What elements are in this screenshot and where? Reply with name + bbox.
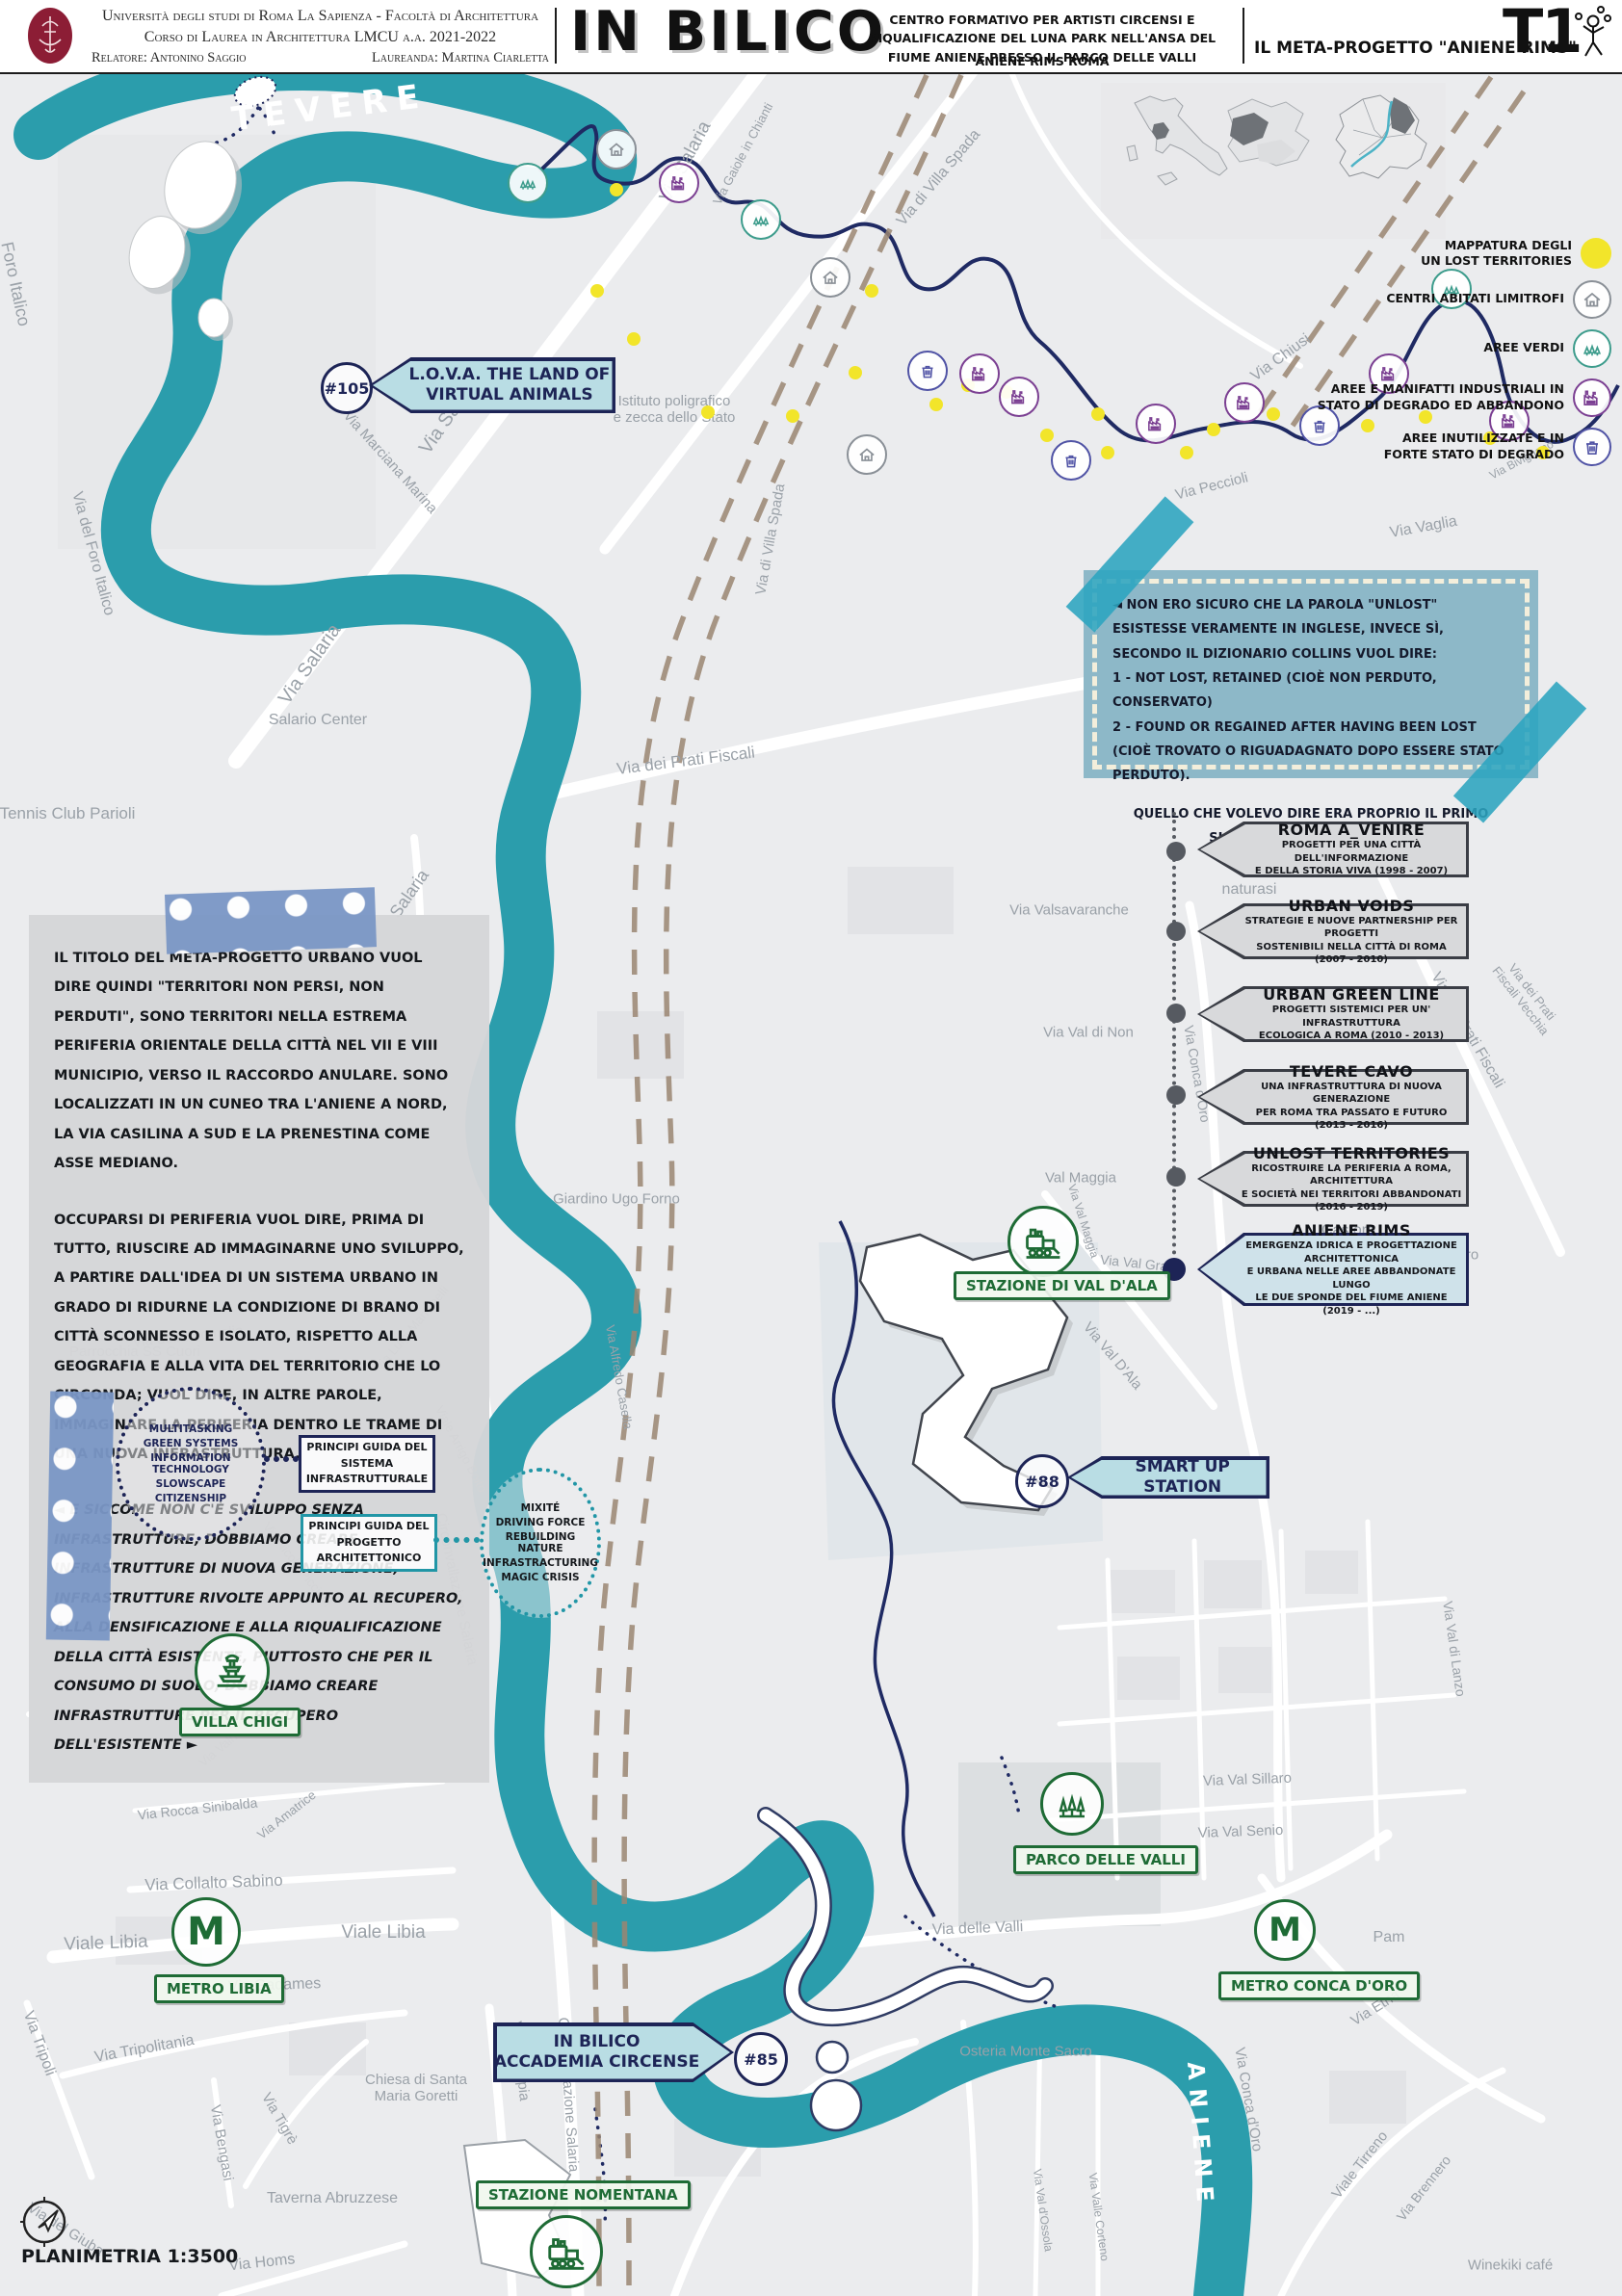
street-label: Via delle Valli — [931, 1918, 1023, 1940]
timeline-node — [1166, 1004, 1186, 1023]
street-label: Taverna Abruzzese — [267, 2190, 398, 2207]
metro-conca-doro-label: METRO CONCA D'ORO — [1218, 1971, 1420, 2000]
quote-line2: 1 - NOT LOST, RETAINED (CIOÈ NON PERDUTO… — [1112, 666, 1509, 716]
timeline-desc: RICOSTRUIRE LA PERIFERIA A ROMA, ARCHITE… — [1240, 1162, 1463, 1214]
timeline-dotted-line — [1172, 812, 1176, 1270]
timeline-node — [1166, 922, 1186, 941]
polka-tape — [46, 1391, 114, 1640]
legend-item-industriali: AREE E MANIFATTI INDUSTRIALI IN STATO DI… — [1305, 378, 1611, 417]
house-icon — [847, 434, 887, 475]
park-trees-icon — [1040, 1772, 1104, 1836]
trash-icon — [1051, 440, 1091, 481]
house-icon — [1573, 280, 1611, 319]
timeline-title: URBAN GREEN LINE — [1240, 985, 1463, 1004]
timeline-node — [1166, 1167, 1186, 1187]
poster-page: TEVERE ANIENE Foro ItalicoVia del Foro I… — [0, 0, 1622, 2296]
street-label: Osteria Monte Sacro — [959, 2043, 1092, 2059]
header-divider-1 — [555, 8, 557, 64]
poster-title: IN BILICO — [570, 0, 886, 64]
metro-icon: M — [171, 1897, 241, 1967]
trash-icon — [907, 351, 948, 391]
yellow-dot-icon — [1581, 238, 1611, 269]
timeline-item-urban-voids: URBAN VOIDS STRATEGIE E NUOVE PARTNERSHI… — [1197, 903, 1469, 959]
principle: MAGIC CRISIS — [501, 1572, 579, 1583]
street-label: Chiesa di Santa Maria Goretti — [365, 2072, 467, 2105]
unlost-territory-dot — [929, 398, 943, 411]
trash-icon — [1573, 428, 1611, 466]
timeline-node — [1166, 842, 1186, 861]
timeline-desc: PROGETTI SISTEMICI PER UN' INFRASTRUTTUR… — [1240, 1004, 1463, 1043]
sapienza-crest-icon — [25, 5, 75, 66]
train-station-icon — [530, 2215, 603, 2288]
quote-line3: 2 - FOUND OR REGAINED AFTER HAVING BEEN … — [1112, 716, 1509, 789]
house-icon — [810, 257, 850, 298]
timeline-title: UNLOST TERRITORIES — [1240, 1144, 1463, 1162]
legend-label: MAPPATURA DEGLI UN LOST TERRITORIES — [1421, 238, 1572, 270]
smart-up-station-label: SMART UP STATION — [1067, 1456, 1269, 1499]
metro-icon: M — [1254, 1899, 1316, 1961]
timeline-item-roma-avenire: ROMA A_VENIRE PROGETTI PER UNA CITTÀ DEL… — [1197, 822, 1469, 877]
legend-label: AREE INUTILIZZATE E IN FORTE STATO DI DE… — [1384, 430, 1564, 462]
principle: CITIZENSHIP — [155, 1493, 226, 1504]
timeline-title: ANIENE RIMS — [1240, 1221, 1463, 1239]
legend-label: CENTRI ABITATI LIMITROFI — [1386, 291, 1564, 306]
unlost-territory-dot — [1207, 423, 1220, 436]
street-label: Viale Libia — [341, 1922, 425, 1944]
unlost-territory-dot — [1267, 407, 1280, 421]
marker-number-85: #85 — [734, 2032, 788, 2086]
factory-icon — [1136, 404, 1176, 444]
street-label: Via Val Sillaro — [1203, 1770, 1293, 1789]
trees-icon — [1573, 329, 1611, 368]
university-line2: Corso di Laurea in Architettura LMCU a.a… — [92, 29, 549, 46]
laureanda-label: Laureanda: Martina Ciarletta — [372, 50, 549, 66]
stazione-nomentana-label: STAZIONE NOMENTANA — [476, 2180, 691, 2209]
map-legend: MAPPATURA DEGLI UN LOST TERRITORIES CENT… — [1305, 238, 1611, 477]
accademia-circense-label: IN BILICO ACCADEMIA CIRCENSE — [493, 2022, 734, 2082]
timeline-desc: STRATEGIE E NUOVE PARTNERSHIP PER PROGET… — [1240, 915, 1463, 967]
unlost-territory-dot — [1091, 407, 1105, 421]
street-label: Salario Center — [269, 712, 367, 729]
timeline-desc: PROGETTI PER UNA CITTÀ DELL'INFORMAZIONE… — [1240, 839, 1463, 878]
principle: SLOWSCAPE — [156, 1478, 226, 1490]
unlost-territory-dot — [1180, 446, 1193, 459]
relatore-label: Relatore: Antonino Saggio — [92, 50, 247, 66]
timeline-title: ROMA A_VENIRE — [1240, 821, 1463, 839]
house-icon — [596, 129, 637, 170]
juggler-icon — [1566, 6, 1618, 67]
header-divider-2 — [1243, 8, 1244, 64]
legend-item-verdi: AREE VERDI — [1305, 329, 1611, 368]
timeline-title: URBAN VOIDS — [1240, 897, 1463, 915]
unlost-territory-dot — [610, 183, 623, 196]
intro-paragraph-2: OCCUPARSI DI PERIFERIA VUOL DIRE, PRIMA … — [54, 1206, 464, 1470]
principle: DRIVING FORCE — [496, 1517, 586, 1528]
unlost-territory-dot — [1040, 429, 1054, 442]
unlost-quote-box: ◄ NON ERO SICURO CHE LA PAROLA "UNLOST" … — [1084, 570, 1538, 778]
timeline-title: TEVERE CAVO — [1240, 1062, 1463, 1081]
infrastructure-principles-circle: MULTITASKING GREEN SYSTEMS INFORMATION T… — [116, 1387, 266, 1541]
stazione-val-dala-label: STAZIONE DI VAL D'ALA — [954, 1271, 1170, 1300]
university-line1: Università degli studi di Roma La Sapien… — [92, 8, 549, 25]
fountain-icon — [195, 1633, 270, 1709]
dotted-connector — [264, 1456, 299, 1462]
street-label: Via Valsavaranche — [1009, 901, 1129, 918]
metro-letter: M — [1269, 1911, 1301, 1949]
factory-icon — [659, 163, 699, 203]
compass-icon — [19, 2196, 73, 2250]
unlost-territory-dot — [865, 284, 878, 298]
marker-label-text: L.O.V.A. THE LAND OF VIRTUAL ANIMALS — [369, 357, 615, 413]
marker-label-text: IN BILICO ACCADEMIA CIRCENSE — [493, 2022, 734, 2082]
unlost-territory-dot — [786, 409, 799, 423]
principle: INFRASTRACTURING — [483, 1557, 598, 1569]
header-bar: Università degli studi di Roma La Sapien… — [0, 0, 1622, 74]
train-station-icon — [1007, 1206, 1079, 1277]
unlost-territory-dot — [701, 405, 715, 419]
timeline-item-urban-green-line: URBAN GREEN LINE PROGETTI SISTEMICI PER … — [1197, 986, 1469, 1042]
marker-number-88: #88 — [1015, 1454, 1069, 1508]
unlost-territory-dot — [627, 332, 641, 346]
dotted-connector — [433, 1537, 480, 1543]
principle: MIXITÉ — [521, 1502, 561, 1514]
marker-number-105: #105 — [321, 362, 373, 414]
legend-item-inutilizzate: AREE INUTILIZZATE E IN FORTE STATO DI DE… — [1305, 428, 1611, 466]
legend-item-unlost: MAPPATURA DEGLI UN LOST TERRITORIES — [1305, 238, 1611, 270]
minimap-lazio — [1228, 99, 1309, 166]
poster-subt-line2: ANIENE RIMS ROMA — [846, 54, 1239, 68]
street-label: Viale Libia — [64, 1932, 148, 1956]
street-label: Tennis Club Parioli — [0, 804, 135, 823]
timeline-item-unlost-territories: UNLOST TERRITORIES RICOSTRUIRE LA PERIFE… — [1197, 1151, 1469, 1207]
street-label: Pam — [1373, 1929, 1405, 1946]
timeline-node — [1166, 1085, 1186, 1105]
principle: INFORMATION TECHNOLOGY — [119, 1452, 262, 1475]
architecture-principles-circle: MIXITÉ DRIVING FORCE REBUILDING NATURE I… — [480, 1468, 601, 1618]
quote-line1: ◄ NON ERO SICURO CHE LA PAROLA "UNLOST" … — [1112, 593, 1509, 666]
factory-icon — [999, 377, 1039, 417]
metro-letter: M — [187, 1910, 225, 1954]
street-label: Via Val di Non — [1043, 1024, 1134, 1040]
principle: MULTITASKING — [149, 1423, 232, 1435]
intro-paragraph-1: IL TITOLO DEL META-PROGETTO URBANO VUOL … — [54, 944, 464, 1179]
street-label: Istituto poligrafico e zecca dello Stato — [614, 393, 736, 427]
factory-icon — [1573, 378, 1611, 417]
street-label: Val Maggia — [1045, 1169, 1116, 1186]
trees-icon — [508, 163, 548, 203]
trees-icon — [741, 199, 781, 240]
legend-label: AREE VERDI — [1483, 340, 1564, 355]
principi-sistema-box: PRINCIPI GUIDA DEL SISTEMA INFRASTRUTTUR… — [299, 1435, 435, 1493]
villa-chigi-label: VILLA CHIGI — [179, 1708, 301, 1736]
lova-marker-label: L.O.V.A. THE LAND OF VIRTUAL ANIMALS — [369, 357, 615, 413]
legend-item-centri: CENTRI ABITATI LIMITROFI — [1305, 280, 1611, 319]
legend-label: AREE E MANIFATTI INDUSTRIALI IN STATO DI… — [1318, 381, 1564, 413]
principle: REBUILDING NATURE — [484, 1531, 597, 1554]
timeline-desc: EMERGENZA IDRICA E PROGETTAZIONE ARCHITE… — [1240, 1239, 1463, 1318]
unlost-territory-dot — [1101, 446, 1114, 459]
timeline-item-aniene-rims: ANIENE RIMS EMERGENZA IDRICA E PROGETTAZ… — [1197, 1233, 1469, 1306]
principle: GREEN SYSTEMS — [144, 1438, 239, 1449]
unlost-territory-dot — [590, 284, 604, 298]
planimetria-scale-note: PLANIMETRIA 1:3500 — [21, 2246, 238, 2267]
street-label: Giardino Ugo Forno — [553, 1190, 680, 1207]
street-label: Via Val Senio — [1197, 1822, 1283, 1841]
street-label: Winekiki café — [1468, 2257, 1553, 2273]
parco-delle-valli-label: PARCO DELLE VALLI — [1013, 1845, 1198, 1874]
principi-progetto-box: PRINCIPI GUIDA DEL PROGETTO ARCHITETTONI… — [301, 1514, 437, 1572]
unlost-territory-dot — [849, 366, 862, 379]
timeline-item-tevere-cavo: TEVERE CAVO UNA INFRASTRUTTURA DI NUOVA … — [1197, 1069, 1469, 1125]
factory-icon — [959, 353, 1000, 394]
factory-icon — [1224, 382, 1265, 423]
timeline-desc: UNA INFRASTRUTTURA DI NUOVA GENERAZIONE … — [1240, 1081, 1463, 1133]
metro-libia-label: METRO LIBIA — [154, 1974, 284, 2003]
marker-label-text: SMART UP STATION — [1067, 1456, 1269, 1499]
polka-tape — [165, 887, 377, 954]
